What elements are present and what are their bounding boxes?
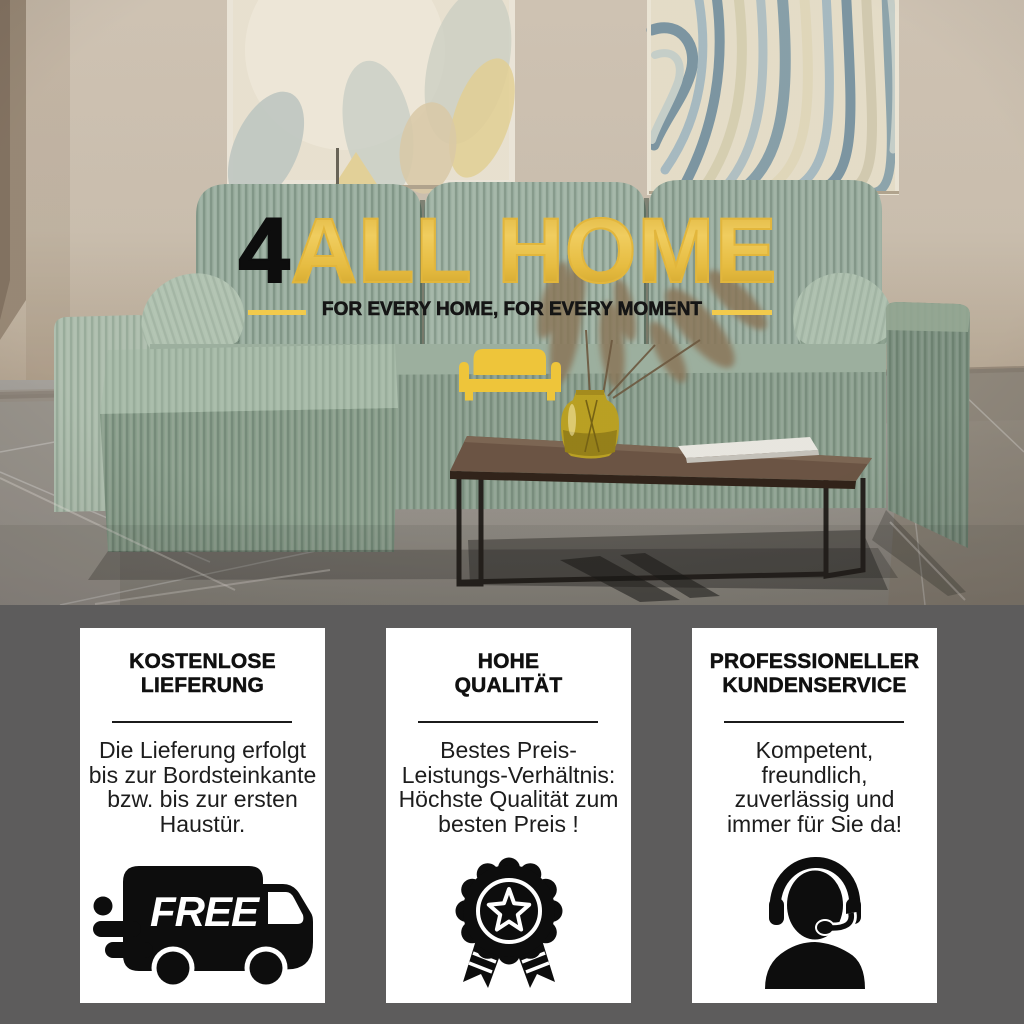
- svg-text:FREE: FREE: [150, 888, 261, 935]
